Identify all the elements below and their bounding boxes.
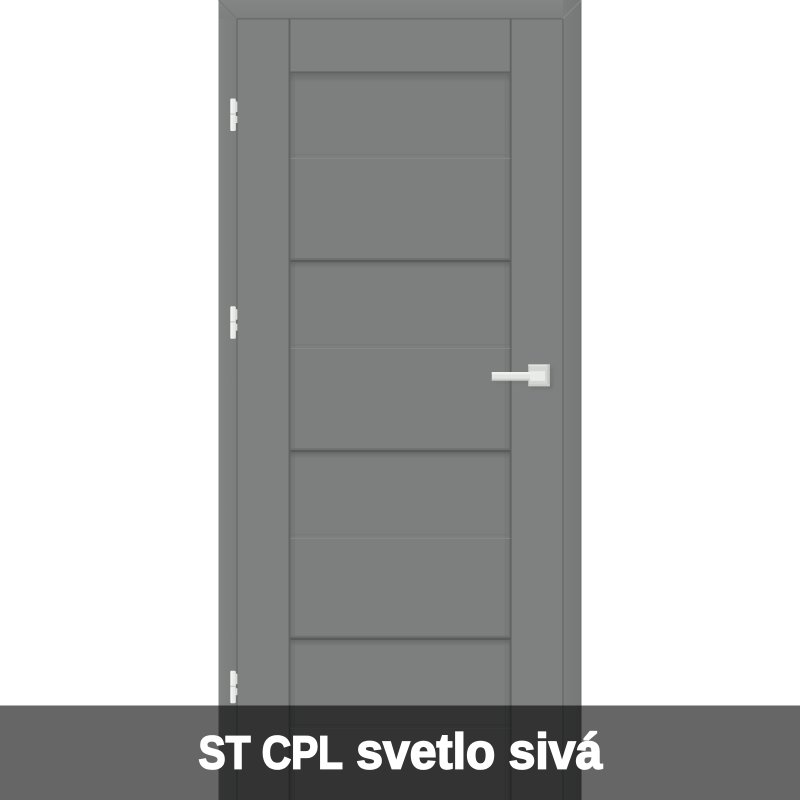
svg-text:ST CPLsvetlo sivá: ST CPLsvetlo sivá [199, 724, 603, 780]
